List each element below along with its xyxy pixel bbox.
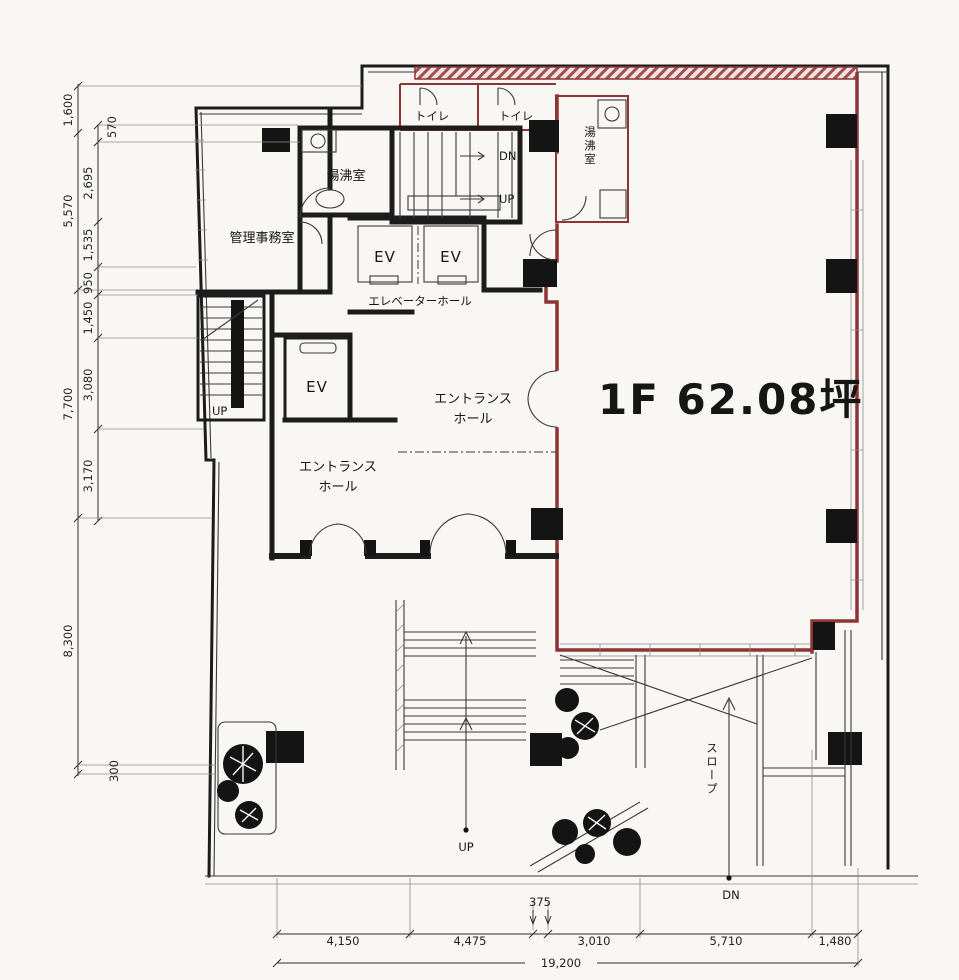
room-label-kitchenette-right: 湯沸室 [583, 126, 597, 167]
planters [217, 655, 648, 872]
dim-left-inner-0: 570 [105, 116, 119, 138]
sink-icon [605, 107, 619, 121]
boundary-top-hatched-wall [415, 67, 857, 79]
dim-left-outer-3: 8,300 [61, 625, 75, 658]
room-label-kitchenette-left: 湯沸室 [326, 168, 365, 184]
dim-left-inner-5: 3,080 [81, 369, 95, 402]
room-label-entrance-hall-left-1: エントランス [299, 460, 377, 475]
dim-left-outer-1: 5,570 [61, 195, 75, 228]
ev-label-2: EV [440, 248, 462, 266]
slope-dn-label: DN [722, 888, 739, 902]
dim-left-inner-2: 1,535 [81, 229, 95, 262]
room-label-admin-office: 管理事務室 [229, 230, 294, 246]
elevators: EV EV EV [285, 226, 478, 420]
dim-left-outer-0: 1,600 [61, 94, 75, 127]
room-label-entrance-hall-center-2: ホール [453, 412, 492, 427]
room-label-toilet-left: トイレ [415, 109, 450, 123]
dim-bottom-3: 3,010 [578, 934, 611, 948]
ev-label-1: EV [374, 248, 396, 266]
dim-bottom-1: 4,475 [454, 934, 487, 948]
steps-up-label: UP [458, 840, 473, 854]
dim-left-inner-4: 1,450 [81, 302, 95, 335]
dim-bottom-total: 19,200 [541, 956, 581, 970]
toilet-bowl-icon [316, 190, 344, 208]
interior-walls [198, 110, 556, 558]
room-label-toilet-right: トイレ [499, 109, 534, 123]
dim-left-inner-1: 2,695 [81, 167, 95, 200]
tree-icon [613, 828, 641, 856]
floor-plan-sheet: EV EV EV DN UP UP UP スロープ DN [0, 0, 959, 980]
dim-left-inner-3: 950 [81, 272, 95, 294]
floor-area-title: 1F 62.08坪 [598, 375, 863, 424]
ev-label-3: EV [306, 378, 328, 396]
dim-left-inner-6: 3,170 [81, 460, 95, 493]
dim-bottom-2: 375 [529, 895, 551, 909]
room-label-elevator-hall: エレベーターホール [368, 294, 472, 308]
dim-bottom-5: 1,480 [819, 934, 852, 948]
stair-up-label: UP [499, 192, 514, 206]
dimension-chain-bottom: 4,150 4,475 375 3,010 5,710 1,480 19,200 [273, 750, 862, 970]
dim-bottom-4: 5,710 [710, 934, 743, 948]
room-label-entrance-hall-center-1: エントランス [434, 392, 512, 407]
tree-icon [217, 780, 239, 802]
sink-icon [311, 134, 325, 148]
tree-icon [557, 737, 579, 759]
tree-icon [555, 688, 579, 712]
dim-left-outer-4: 300 [107, 760, 121, 782]
tree-icon [575, 844, 595, 864]
stair-left-up-label: UP [212, 404, 227, 418]
room-label-entrance-hall-left-2: ホール [318, 480, 357, 495]
stair-top: DN UP [400, 132, 516, 218]
stair-dn-label: DN [499, 149, 516, 163]
slope-ramp: スロープ DN [560, 630, 851, 902]
tree-icon [552, 819, 578, 845]
floor-plan-drawing: EV EV EV DN UP UP UP スロープ DN [0, 0, 959, 980]
dim-bottom-0: 4,150 [327, 934, 360, 948]
slope-label: スロープ [705, 742, 719, 796]
dim-left-outer-2: 7,700 [61, 388, 75, 421]
